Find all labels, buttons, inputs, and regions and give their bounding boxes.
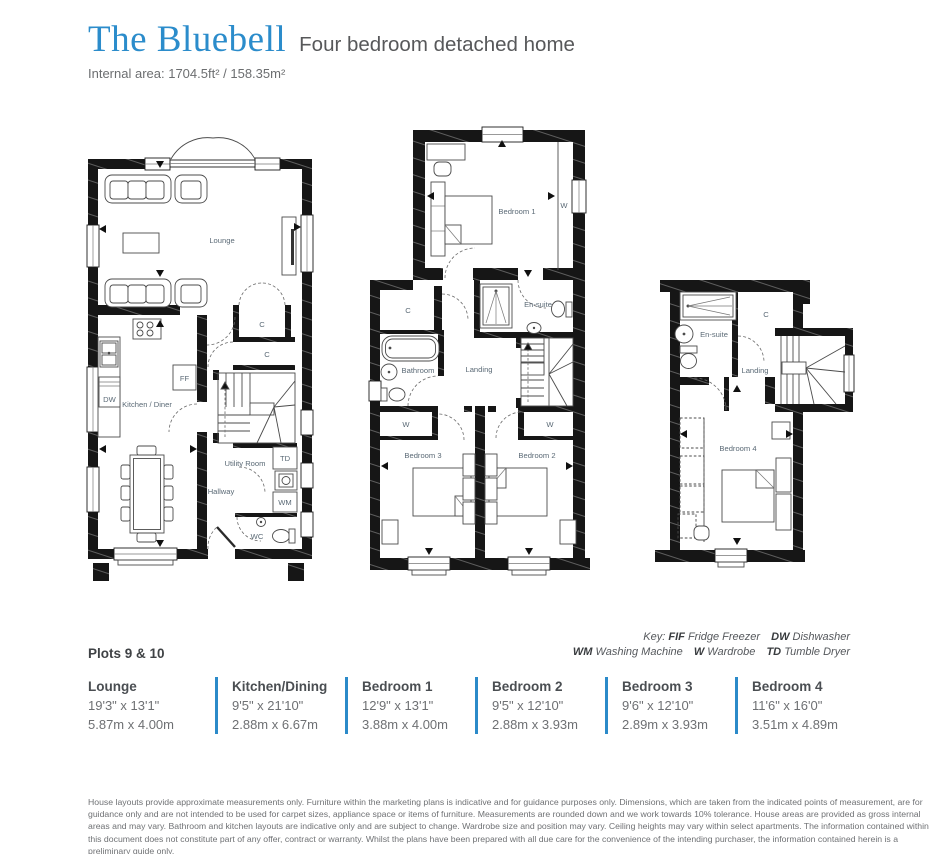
key-label-tumble-dryer: Tumble Dryer [784, 646, 850, 658]
label-wardrobe-2: W [402, 420, 410, 429]
spec-imperial: 11'6" x 16'0" [752, 696, 865, 715]
key-line-1: Key: FIF Fridge Freezer DW Dishwasher [520, 630, 850, 645]
room-label-kitchen-diner: Kitchen / Diner [122, 400, 172, 409]
spec-kitchen-dining: Kitchen/Dining 9'5" x 21'10" 2.88m x 6.6… [215, 677, 345, 734]
room-label-utility: Utility Room [225, 459, 266, 468]
spec-room-name: Lounge [88, 677, 215, 696]
room-dimensions: Lounge 19'3" x 13'1" 5.87m x 4.00m Kitch… [88, 677, 865, 734]
spec-metric: 3.88m x 4.00m [362, 715, 475, 734]
spec-metric: 2.88m x 6.67m [232, 715, 345, 734]
header: The BluebellFour bedroom detached home [88, 18, 575, 61]
spec-imperial: 9'5" x 12'10" [492, 696, 605, 715]
key-abbr-fif: FIF [668, 631, 685, 643]
spec-room-name: Bedroom 4 [752, 677, 865, 696]
toilet [273, 530, 290, 543]
spec-lounge: Lounge 19'3" x 13'1" 5.87m x 4.00m [88, 677, 215, 734]
spec-room-name: Bedroom 2 [492, 677, 605, 696]
label-cupboard-1: C [259, 320, 265, 329]
spec-imperial: 12'9" x 13'1" [362, 696, 475, 715]
spec-metric: 2.88m x 3.93m [492, 715, 605, 734]
tv-unit [282, 217, 296, 275]
dining-table [121, 446, 173, 542]
home-subtitle: Four bedroom detached home [299, 33, 575, 56]
spec-bedroom-1: Bedroom 1 12'9" x 13'1" 3.88m x 4.00m [345, 677, 475, 734]
spec-room-name: Kitchen/Dining [232, 677, 345, 696]
key-abbr-wm: WM [573, 646, 593, 658]
key-abbr-td: TD [766, 646, 781, 658]
room-label-hallway: Hallway [208, 487, 235, 496]
label-tumble-dryer: TD [280, 454, 291, 463]
front-door-leaf [217, 527, 235, 547]
spec-bedroom-4: Bedroom 4 11'6" x 16'0" 3.51m x 4.89m [735, 677, 865, 734]
toilet [681, 354, 697, 369]
key-label-washing-machine: Washing Machine [596, 646, 683, 658]
desk [427, 144, 465, 160]
key-line-2: WM Washing Machine W Wardrobe TD Tumble … [520, 645, 850, 660]
label-fridge-freezer: FF [180, 374, 190, 383]
ground-stairs [218, 373, 295, 443]
room-label-bedroom2: Bedroom 2 [518, 451, 555, 460]
spec-bedroom-3: Bedroom 3 9'6" x 12'10" 2.89m x 3.93m [605, 677, 735, 734]
bedroom4-furniture [678, 418, 791, 542]
bedroom3-furniture [382, 454, 475, 544]
spec-metric: 5.87m x 4.00m [88, 715, 215, 734]
spec-metric: 3.51m x 4.89m [752, 715, 865, 734]
spec-bedroom-2: Bedroom 2 9'5" x 12'10" 2.88m x 3.93m [475, 677, 605, 734]
label-washing-machine: WM [278, 498, 292, 507]
key-label-fridge-freezer: Fridge Freezer [688, 631, 760, 643]
bedroom1-furniture [427, 142, 558, 270]
toilet [552, 301, 565, 317]
room-label-wc: WC [251, 532, 264, 541]
coffee-table [123, 233, 159, 253]
home-title: The Bluebell [88, 19, 286, 60]
key-prefix: Key: [643, 631, 665, 643]
spec-imperial: 19'3" x 13'1" [88, 696, 215, 715]
room-label-lounge: Lounge [209, 236, 234, 245]
spec-imperial: 9'6" x 12'10" [622, 696, 735, 715]
disclaimer-text: House layouts provide approximate measur… [88, 796, 936, 854]
sofa-group-bottom [105, 279, 207, 307]
ground-doors [169, 283, 285, 549]
second-stairs [781, 336, 845, 404]
key-label-wardrobe: Wardrobe [707, 646, 755, 658]
chair [694, 526, 709, 540]
sofa-group-top [105, 175, 207, 203]
label-cupboard: C [405, 306, 411, 315]
ground-floor-plan: Lounge Kitchen / Diner C C Utility Room … [85, 137, 315, 592]
plots-label: Plots 9 & 10 [88, 646, 165, 661]
room-label-landing-2: Landing [741, 366, 768, 375]
label-cupboard-3: C [763, 310, 769, 319]
floorplan-brochure-page: The BluebellFour bedroom detached home I… [0, 0, 940, 854]
spec-room-name: Bedroom 3 [622, 677, 735, 696]
label-wardrobe-1: W [560, 201, 568, 210]
spec-imperial: 9'5" x 21'10" [232, 696, 345, 715]
room-label-ensuite-2: En-suite [700, 330, 728, 339]
appliance-key: Key: FIF Fridge Freezer DW Dishwasher WM… [520, 630, 850, 660]
french-doors [171, 138, 255, 159]
key-label-dishwasher: Dishwasher [793, 631, 850, 643]
label-dishwasher: DW [103, 395, 116, 404]
room-label-bedroom3: Bedroom 3 [404, 451, 441, 460]
toilet [389, 388, 405, 401]
second-floor-plan: En-suite C Landing Bedroom 4 [650, 272, 870, 582]
bedroom2-furniture [485, 454, 576, 544]
room-label-landing: Landing [465, 365, 492, 374]
first-stairs [521, 338, 573, 406]
spec-metric: 2.89m x 3.93m [622, 715, 735, 734]
room-label-bathroom: Bathroom [402, 366, 435, 375]
internal-area: Internal area: 1704.5ft² / 158.35m² [88, 66, 285, 81]
label-cupboard-2: C [264, 350, 270, 359]
room-label-bedroom4: Bedroom 4 [719, 444, 756, 453]
label-wardrobe-3: W [546, 420, 554, 429]
desk-chair [434, 162, 451, 176]
room-label-ensuite: En-suite [524, 300, 552, 309]
room-label-bedroom1: Bedroom 1 [498, 207, 535, 216]
first-floor-plan: Bedroom 1 W C Bathroom Landing En-suite … [368, 118, 590, 580]
key-abbr-dw: DW [771, 631, 789, 643]
key-abbr-w: W [694, 646, 704, 658]
spec-room-name: Bedroom 1 [362, 677, 475, 696]
